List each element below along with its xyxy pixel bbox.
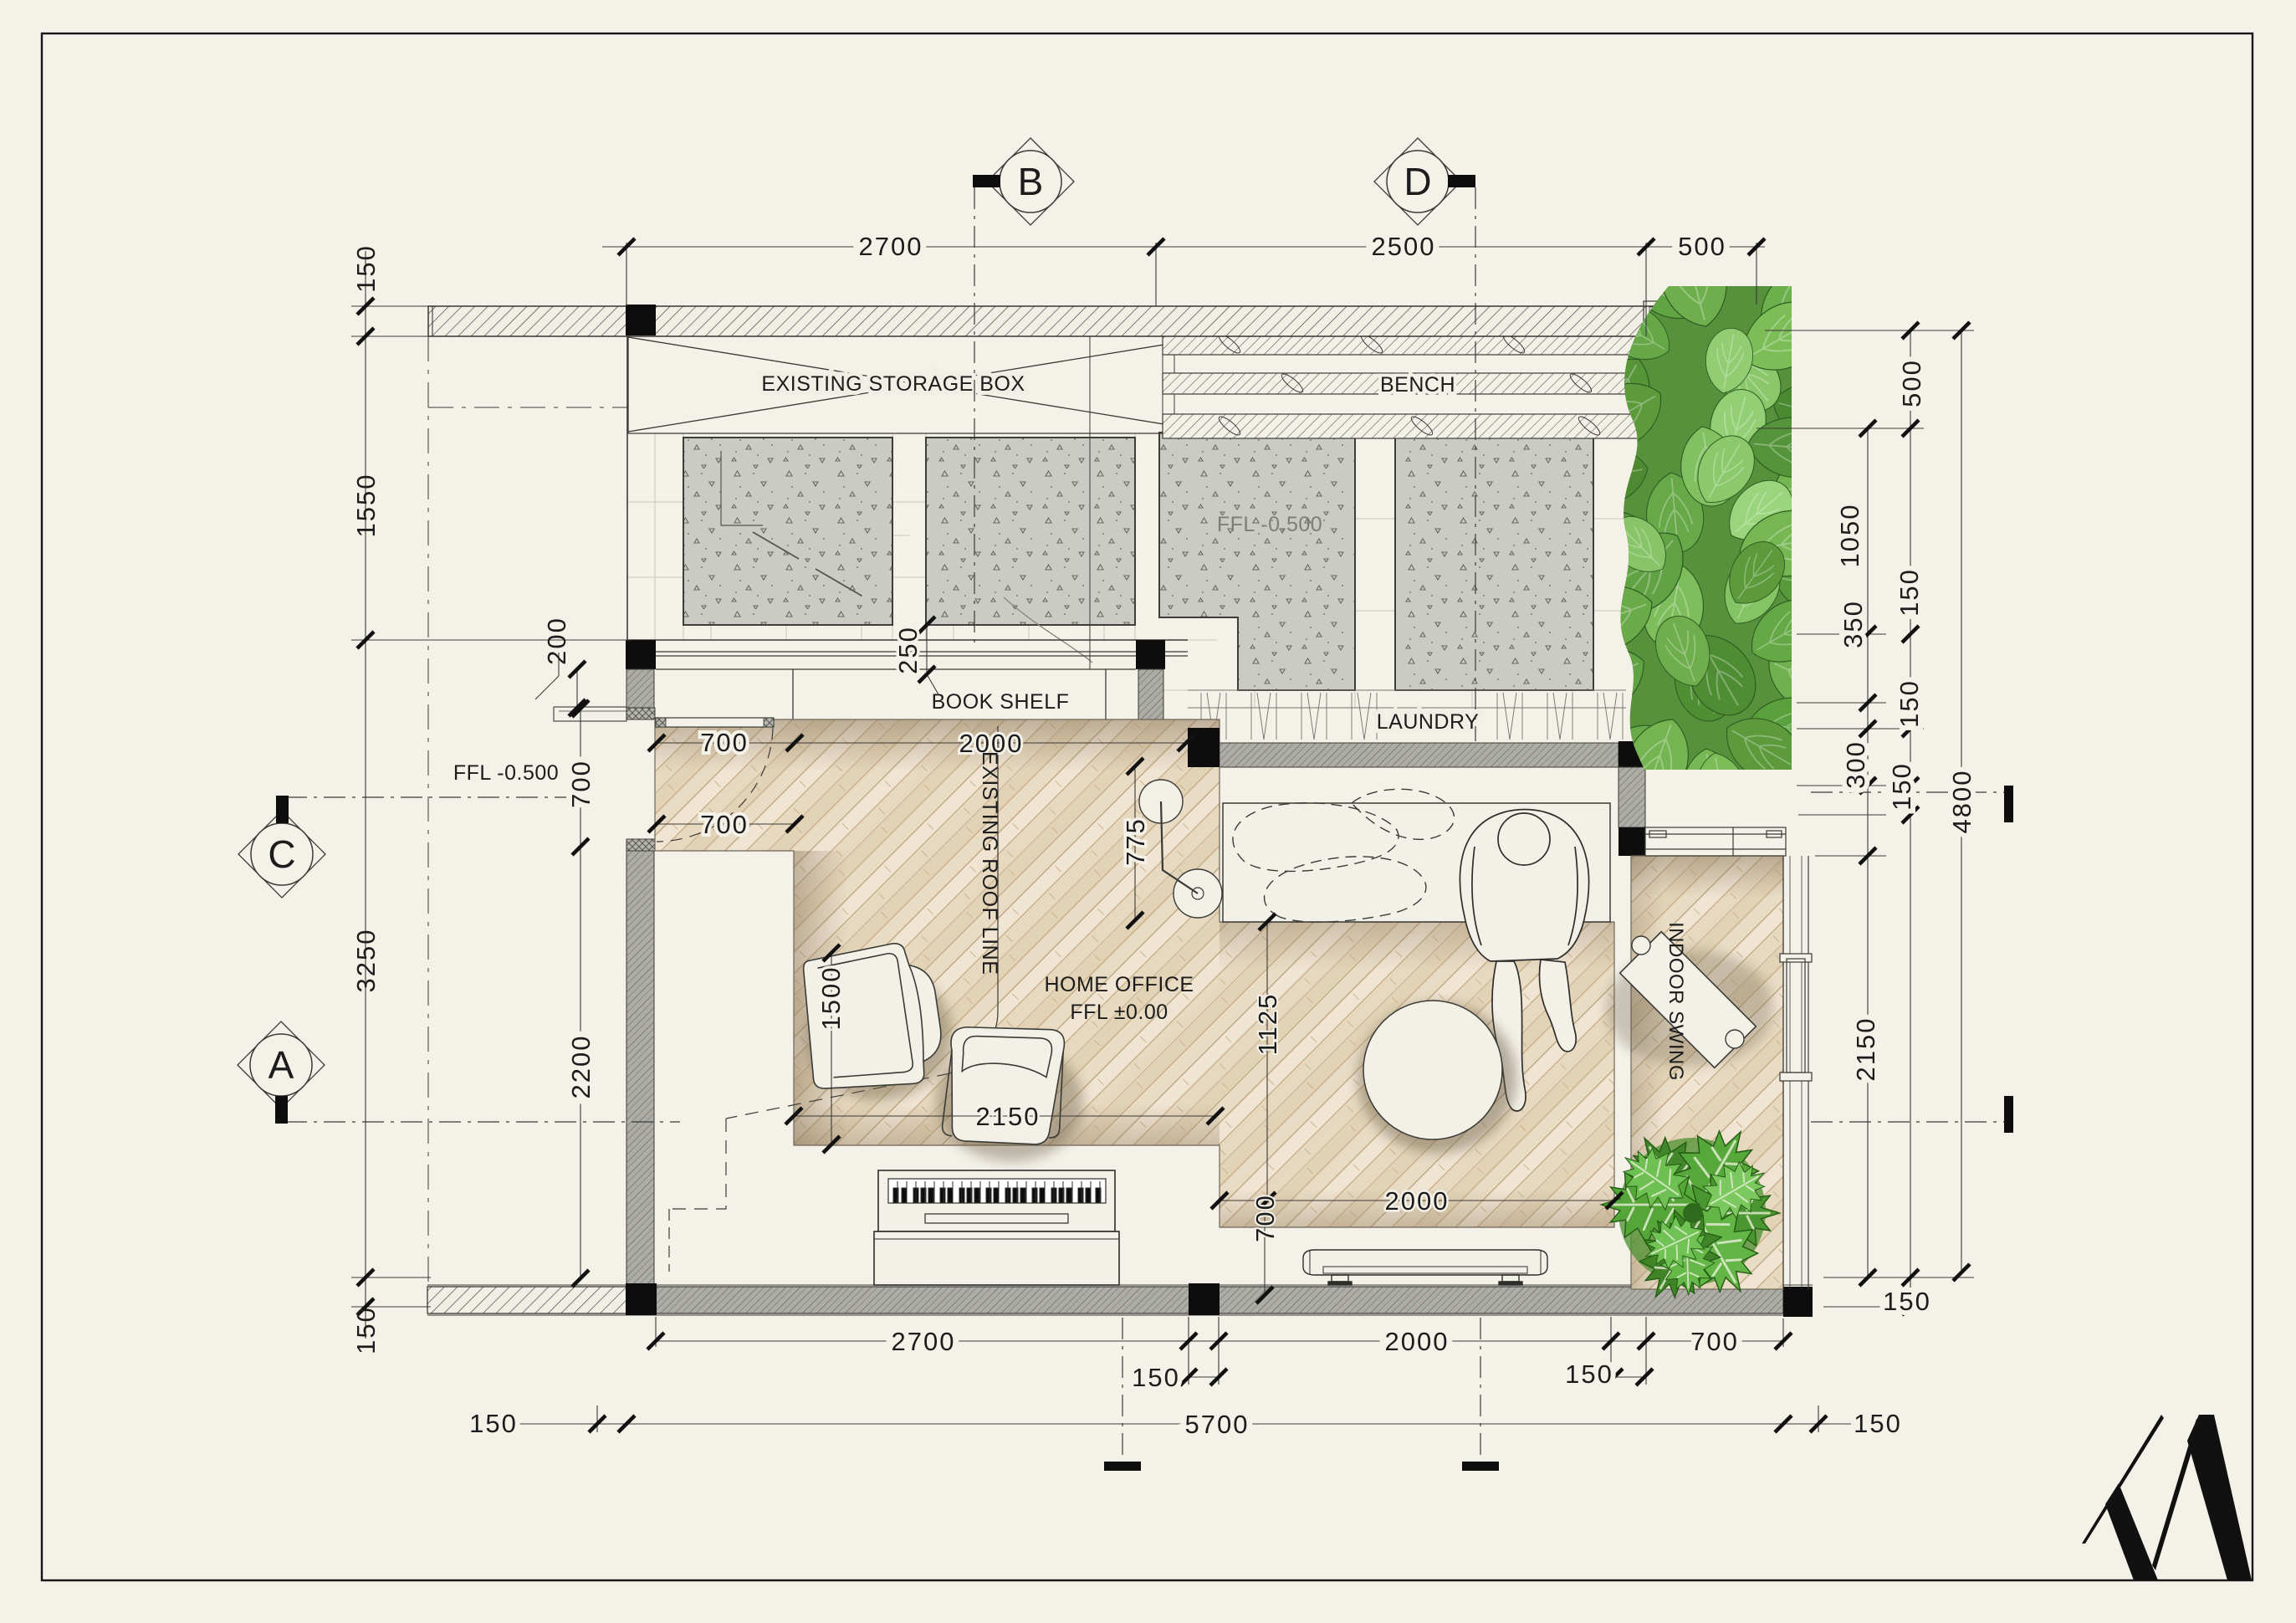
svg-text:INDOOR SWING: INDOOR SWING	[1664, 922, 1687, 1081]
svg-text:1500: 1500	[816, 966, 846, 1031]
svg-text:350: 350	[1838, 600, 1868, 648]
svg-text:300: 300	[1841, 740, 1870, 789]
svg-text:700: 700	[700, 810, 749, 839]
svg-text:FFL -0.500: FFL -0.500	[453, 761, 559, 785]
svg-text:BENCH: BENCH	[1380, 373, 1455, 397]
svg-text:700: 700	[700, 728, 749, 757]
svg-text:2000: 2000	[1385, 1327, 1450, 1356]
svg-text:D: D	[1404, 160, 1431, 203]
svg-text:HOME OFFICE: HOME OFFICE	[1044, 973, 1194, 996]
svg-text:2200: 2200	[566, 1035, 596, 1099]
svg-text:150: 150	[1132, 1363, 1180, 1392]
svg-text:700: 700	[1690, 1327, 1739, 1356]
svg-text:150: 150	[1854, 1409, 1902, 1438]
svg-text:FFL ±0.00: FFL ±0.00	[1070, 1001, 1168, 1024]
svg-text:150: 150	[1895, 679, 1924, 728]
svg-text:150: 150	[1887, 762, 1916, 811]
svg-text:2000: 2000	[1385, 1186, 1450, 1216]
svg-text:4800: 4800	[1947, 770, 1976, 834]
svg-text:700: 700	[566, 760, 596, 808]
svg-text:150: 150	[1895, 568, 1924, 617]
svg-text:EXISTING STORAGE BOX: EXISTING STORAGE BOX	[761, 372, 1025, 396]
svg-text:EXISTING ROOF LINE: EXISTING ROOF LINE	[978, 751, 1001, 975]
svg-text:500: 500	[1678, 232, 1726, 261]
svg-text:2700: 2700	[859, 232, 923, 261]
svg-text:200: 200	[542, 617, 571, 665]
svg-text:500: 500	[1897, 359, 1926, 407]
svg-text:B: B	[1018, 160, 1044, 203]
svg-text:150: 150	[351, 1306, 381, 1354]
svg-text:2150: 2150	[976, 1102, 1041, 1131]
svg-text:2150: 2150	[1851, 1017, 1880, 1082]
svg-text:250: 250	[893, 626, 923, 674]
svg-text:LAUNDRY: LAUNDRY	[1377, 710, 1480, 734]
svg-text:150: 150	[469, 1409, 518, 1438]
svg-text:C: C	[268, 832, 295, 876]
svg-text:FFL -0.500: FFL -0.500	[1217, 513, 1322, 536]
svg-text:2500: 2500	[1372, 232, 1436, 261]
svg-text:1550: 1550	[351, 474, 381, 538]
svg-text:5700: 5700	[1185, 1410, 1250, 1439]
svg-text:3250: 3250	[351, 929, 381, 993]
svg-text:150: 150	[1883, 1287, 1931, 1316]
svg-text:A: A	[268, 1043, 294, 1087]
svg-text:150: 150	[351, 244, 381, 293]
svg-text:700: 700	[1250, 1194, 1280, 1242]
svg-text:1050: 1050	[1835, 504, 1864, 568]
svg-text:1125: 1125	[1253, 993, 1282, 1056]
svg-text:150: 150	[1565, 1359, 1613, 1389]
svg-text:775: 775	[1121, 817, 1150, 866]
svg-text:2700: 2700	[892, 1327, 956, 1356]
svg-text:BOOK SHELF: BOOK SHELF	[932, 690, 1070, 714]
